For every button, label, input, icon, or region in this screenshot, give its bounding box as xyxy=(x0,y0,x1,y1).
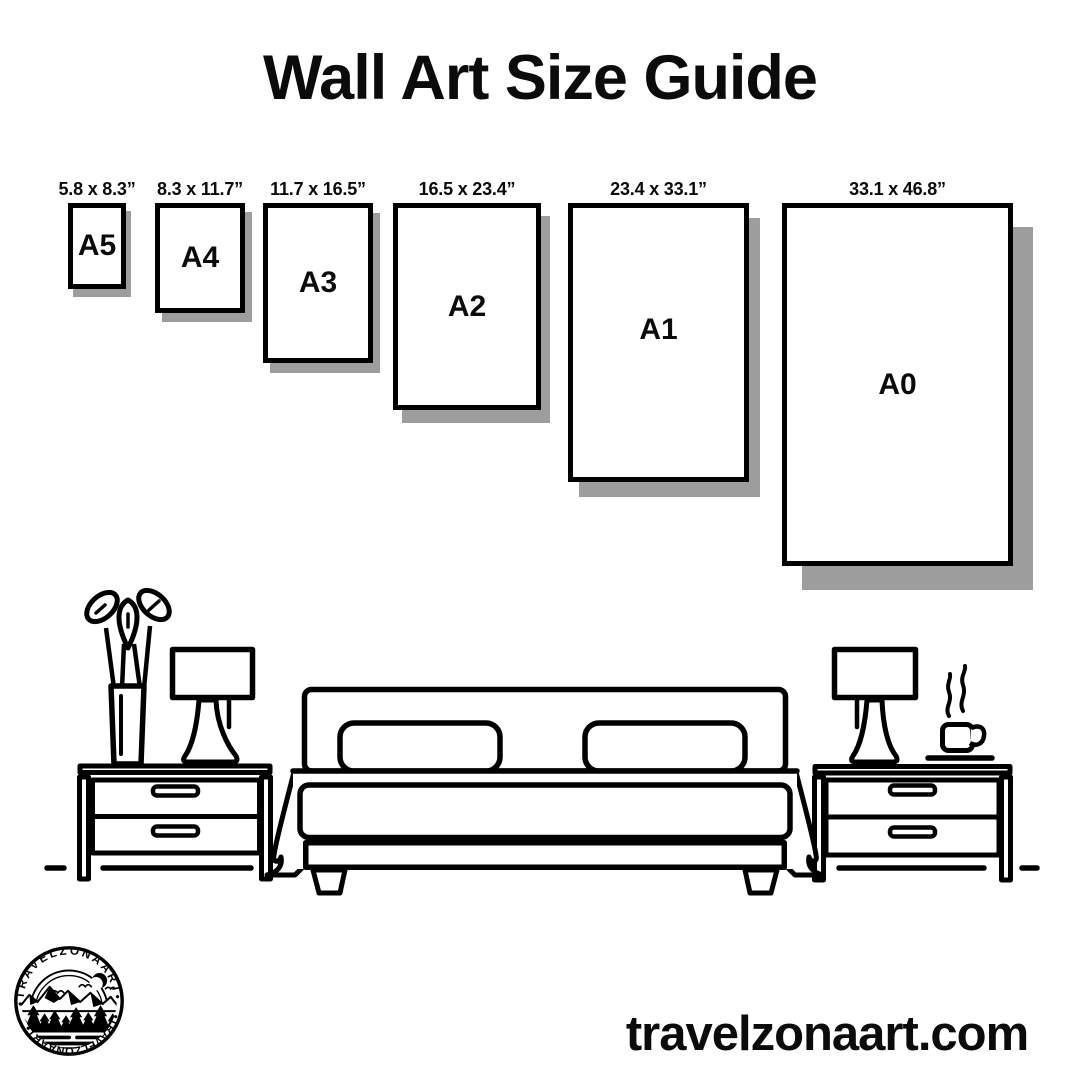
size-guide-poster: Wall Art Size Guide 5.8 x 8.3” A5 8.3 x … xyxy=(0,0,1080,1080)
lamp-right-icon xyxy=(835,650,916,763)
website-url: travelzonaart.com xyxy=(626,1006,1028,1062)
nightstand-right-icon xyxy=(815,767,1011,881)
lamp-left-icon xyxy=(173,650,253,763)
bedroom-scene-illustration xyxy=(0,0,1080,1080)
coffee-cup-icon xyxy=(928,666,992,758)
travelzonaart-logo: •TRAVELZONAART• •TRAVELZONAART• xyxy=(8,940,130,1062)
plant-vase-icon xyxy=(81,585,174,764)
bed-icon xyxy=(267,690,823,894)
nightstand-left-icon xyxy=(80,766,271,879)
